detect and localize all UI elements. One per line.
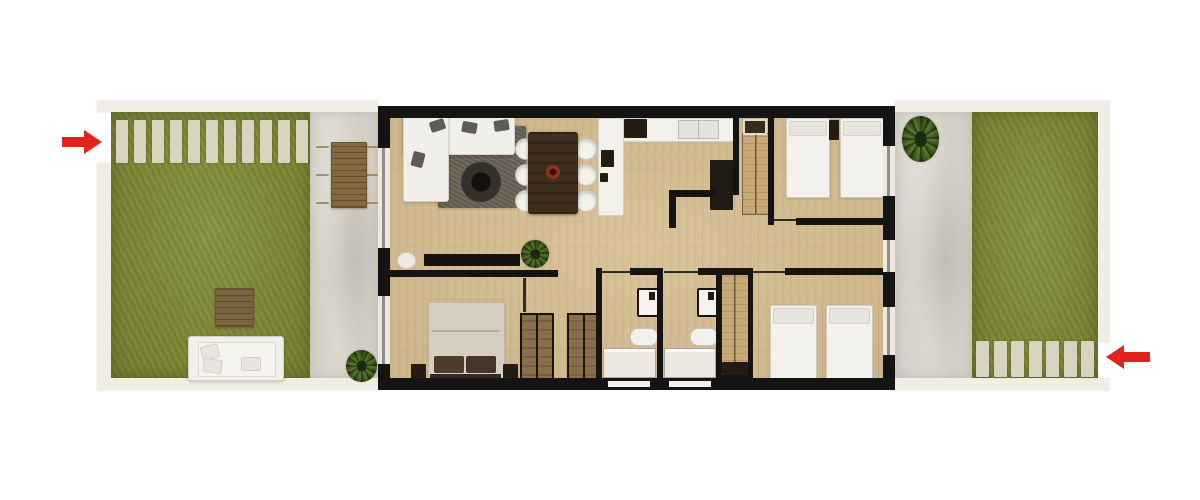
door-leaf-bathroom-2	[664, 271, 698, 273]
exterior-wall-right	[883, 106, 895, 146]
right-plot-border-right-upper	[1098, 112, 1110, 342]
window-bedroom-top-right	[883, 146, 895, 196]
kitchen-wall-h	[669, 190, 716, 197]
sliding-door-living	[378, 148, 390, 248]
wardrobe-closet	[520, 313, 554, 387]
left-plot-border-top	[97, 100, 378, 112]
paver-stone	[188, 120, 200, 163]
interior-wall	[390, 270, 558, 277]
paver-stone	[152, 120, 164, 163]
outdoor-chair	[316, 174, 329, 176]
bed-pillow	[843, 121, 881, 136]
sink-bowl	[699, 121, 718, 138]
right-patio-plant	[902, 116, 939, 162]
entry-arrow-left	[62, 130, 102, 154]
round-coffee-table	[461, 162, 501, 202]
door-leaf-bathroom-1	[602, 271, 630, 273]
sofa-cushion	[493, 119, 509, 132]
duvet-fold	[432, 330, 499, 332]
entry-wardrobe	[742, 133, 770, 215]
paver-stone	[1046, 341, 1059, 377]
bed-pillow	[773, 308, 814, 324]
tv-console	[424, 254, 520, 266]
exterior-wall-left	[378, 248, 390, 296]
outdoor-chair	[316, 146, 329, 148]
exterior-wall-right	[883, 272, 895, 307]
left-plot-border-left-lower	[97, 163, 111, 378]
nightstand	[829, 120, 839, 140]
doormat	[743, 119, 767, 135]
paver-stone	[278, 120, 290, 163]
dining-chair	[575, 190, 597, 212]
bed-pillow	[789, 121, 827, 136]
bathroom-window-slit	[669, 381, 711, 387]
outdoor-dining-table	[331, 142, 367, 208]
paver-stone	[224, 120, 236, 163]
paver-stone	[170, 120, 182, 163]
interior-wall	[630, 268, 657, 275]
tall-cabinet	[710, 160, 733, 210]
bathroom-window-slit	[608, 381, 650, 387]
wardrobe-column	[722, 275, 748, 375]
garden-sofa-pillow	[202, 358, 223, 375]
entry-wall	[733, 117, 739, 195]
washbasin	[690, 328, 718, 346]
window-hallway	[883, 240, 895, 272]
coffee-machine	[601, 150, 614, 167]
paver-stone	[116, 120, 128, 163]
wardrobe-drawer	[722, 362, 748, 375]
arrow-head	[84, 130, 102, 154]
interior-wall	[657, 268, 663, 390]
dining-chair	[575, 164, 597, 186]
kitchen-sink	[678, 120, 719, 139]
paver-stone	[994, 341, 1007, 377]
right-plot-border-bottom	[895, 378, 1110, 390]
paver-stone	[242, 120, 254, 163]
paver-stone	[260, 120, 272, 163]
interior-wall	[596, 268, 602, 390]
outdoor-chair-column-left	[316, 146, 329, 204]
cooktop	[624, 119, 647, 138]
garden-sofa-pillow	[241, 357, 261, 371]
kitchen-peninsula	[598, 118, 624, 216]
exterior-wall-right	[883, 196, 895, 240]
right-stepping-stones	[976, 341, 1094, 377]
paver-stone	[206, 120, 218, 163]
outdoor-chair	[316, 202, 329, 204]
interior-wall	[785, 268, 883, 275]
sofa-cushion	[461, 121, 478, 134]
paver-stone	[134, 120, 146, 163]
dark-pillow	[434, 356, 464, 373]
arrow-head	[1106, 345, 1124, 369]
arrow-shaft	[1123, 352, 1150, 362]
toilet	[697, 288, 718, 317]
exterior-wall-top	[378, 106, 895, 118]
washbasin	[630, 328, 658, 346]
exterior-wall-left	[378, 364, 390, 390]
paver-stone	[976, 341, 989, 377]
door-leaf-master	[523, 278, 526, 312]
dining-chair	[575, 138, 597, 160]
paver-stone	[1064, 341, 1077, 377]
shower	[603, 348, 656, 378]
paver-stone	[296, 120, 308, 163]
toilet	[637, 288, 659, 317]
sink-bowl	[679, 121, 699, 138]
table-centerpiece	[546, 165, 560, 179]
stool	[397, 252, 416, 269]
paver-stone	[1081, 341, 1094, 377]
door-leaf-bedroom1	[774, 219, 796, 221]
shower	[664, 348, 716, 378]
dark-pillow	[466, 356, 496, 373]
left-stepping-stones	[116, 120, 308, 163]
paver-stone	[1011, 341, 1024, 377]
arrow-shaft	[62, 137, 85, 147]
garden-sofa	[188, 336, 284, 381]
countertop-item	[600, 173, 608, 182]
right-garden-lawn	[972, 112, 1098, 378]
exterior-wall-left	[378, 106, 390, 148]
bed-pillow	[829, 308, 870, 324]
left-patio-plant	[346, 350, 377, 382]
living-room-plant	[521, 240, 549, 268]
paver-stone	[1029, 341, 1042, 377]
sliding-door-bedroom-bottom-right	[753, 271, 785, 273]
exterior-wall-right	[883, 355, 895, 390]
right-plot-border-top	[895, 100, 1110, 112]
interior-wall	[698, 268, 718, 275]
window-master-bedroom	[378, 296, 390, 364]
bedroom1-bottom-wall	[796, 218, 883, 225]
bedroom1-left-wall	[768, 117, 774, 225]
garden-coffee-table	[215, 288, 254, 327]
floor-plan-canvas	[0, 0, 1200, 500]
entry-arrow-right	[1106, 345, 1150, 369]
window-bedroom-bottom-right	[883, 307, 895, 355]
